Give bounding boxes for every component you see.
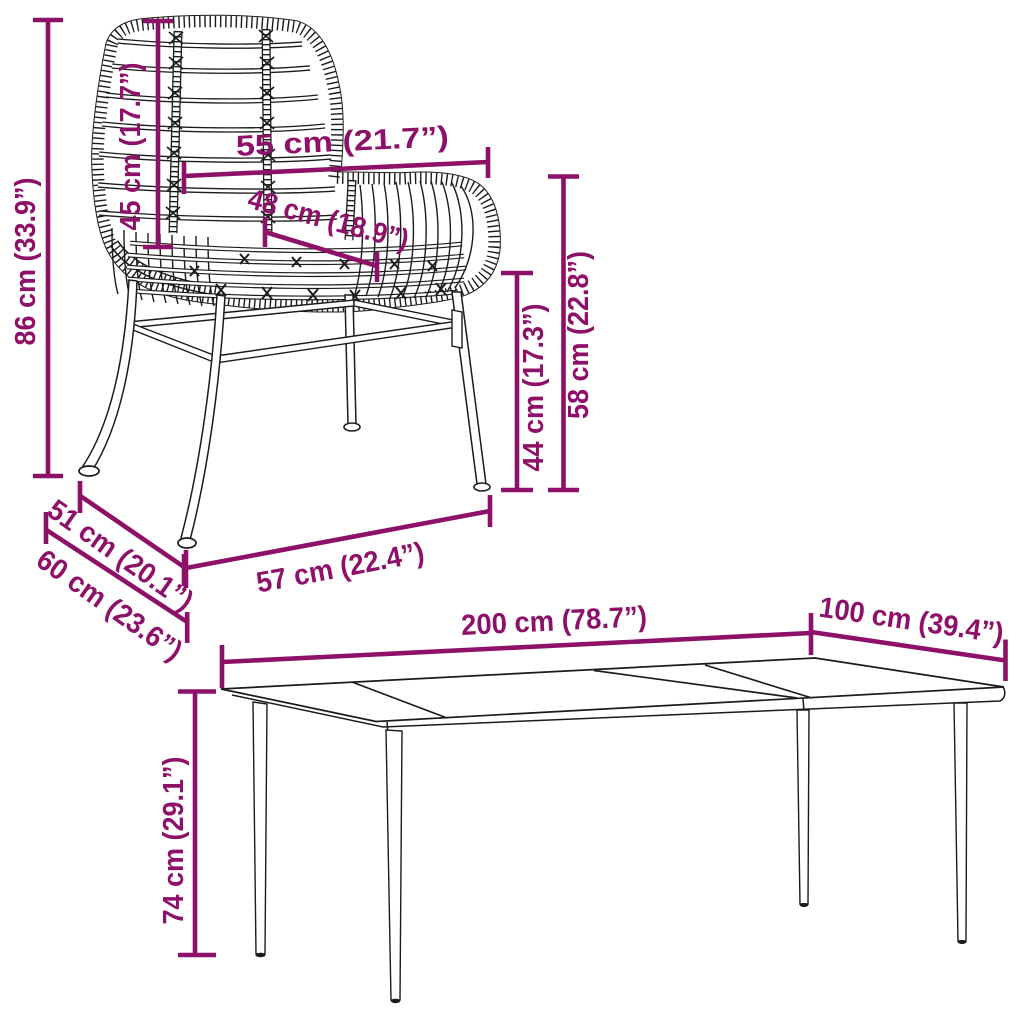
svg-text:44 cm (17.3”): 44 cm (17.3”) (518, 304, 550, 472)
svg-text:86 cm (33.9”): 86 cm (33.9”) (10, 178, 42, 346)
svg-text:45 cm (17.7”): 45 cm (17.7”) (115, 63, 147, 231)
svg-text:200 cm (78.7”): 200 cm (78.7”) (460, 601, 647, 642)
svg-text:74 cm (29.1”): 74 cm (29.1”) (158, 757, 190, 925)
svg-text:58 cm (22.8”): 58 cm (22.8”) (563, 251, 595, 419)
svg-text:57 cm (22.4”): 57 cm (22.4”) (254, 537, 427, 600)
svg-text:100 cm (39.4”): 100 cm (39.4”) (817, 592, 1006, 651)
